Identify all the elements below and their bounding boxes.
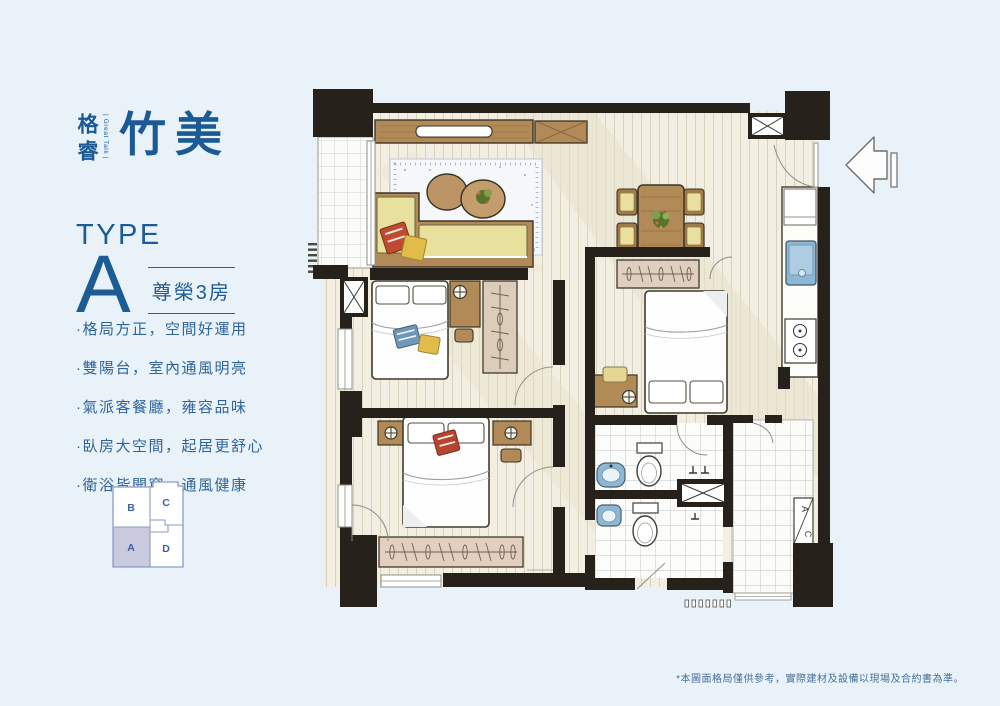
bed <box>645 291 727 413</box>
drain-bumps <box>685 600 731 607</box>
pillow <box>690 381 723 403</box>
stove <box>785 319 816 363</box>
nightstand <box>378 421 404 445</box>
front-balcony <box>308 137 373 273</box>
wall-corner-br <box>793 543 833 607</box>
ac-unit: A C <box>794 498 813 544</box>
bed <box>403 417 489 527</box>
stool <box>603 367 627 382</box>
balcony-slider-window <box>367 141 375 265</box>
key-plan: B C A D <box>103 479 193 575</box>
side-cabinet <box>535 121 587 143</box>
pillow <box>413 286 446 304</box>
toilet <box>637 443 662 486</box>
accent-pillow-yellow <box>418 334 441 354</box>
fridge <box>784 189 816 225</box>
ac-label-a: A <box>800 506 810 512</box>
pipe-shaft <box>677 479 729 507</box>
pillow <box>376 286 409 304</box>
wardrobe <box>617 260 699 288</box>
wall-right <box>818 187 830 543</box>
terrace-rail <box>685 593 791 607</box>
stool <box>455 329 473 342</box>
key-plan-unit-b: B <box>127 502 135 514</box>
bed <box>372 281 448 379</box>
key-plan-unit-d: D <box>162 543 170 555</box>
wardrobe <box>379 537 523 567</box>
window <box>338 329 352 389</box>
disclaimer: *本圖面格局僅供參考，實際建材及設備以現場及合約書為準。 <box>676 670 964 685</box>
pillow <box>649 381 686 403</box>
brand-tagline: | Great Talk | <box>102 113 109 159</box>
feature-item: ·格局方正，空間好運用 <box>76 318 264 339</box>
pipe-shaft <box>752 117 783 135</box>
wardrobe <box>483 281 517 373</box>
wall-corner-tl <box>313 89 373 137</box>
dining-chair <box>684 189 704 215</box>
entry-arrow-icon <box>846 137 897 193</box>
window <box>381 575 441 587</box>
kitchen-sink <box>786 241 816 285</box>
feature-item: ·氣派客餐廳，雍容品味 <box>76 396 264 417</box>
dining-chair <box>684 223 704 249</box>
window <box>338 485 352 527</box>
stool <box>501 449 521 462</box>
dining-table <box>638 185 684 255</box>
wall-corner-bl <box>340 535 377 607</box>
tv <box>416 126 492 137</box>
wall-corner-tr <box>785 91 830 140</box>
floor-plan-illustration: A C <box>295 75 905 635</box>
toilet <box>633 503 658 546</box>
key-plan-unit-c: C <box>162 497 170 509</box>
bedroom-2 <box>372 281 517 379</box>
key-plan-unit-a: A <box>127 542 135 554</box>
kitchen <box>782 187 818 377</box>
feature-item: ·臥房大空間，起居更舒心 <box>76 435 264 456</box>
wash-basin <box>597 505 621 526</box>
dining-chair <box>617 189 637 215</box>
brand-name-vertical: 格睿 <box>76 113 97 167</box>
wall-top <box>373 103 750 113</box>
type-badge: 尊榮3房 <box>148 267 235 314</box>
ac-label-c: C <box>803 531 813 538</box>
brand-logo: 格睿 | Great Talk | 竹美 <box>76 113 231 167</box>
brand-name-main: 竹美 <box>119 111 231 158</box>
type-block: TYPE A 尊榮3房 <box>76 219 235 318</box>
tv-console <box>375 120 533 143</box>
throw-pillow-yellow <box>401 235 427 261</box>
pipe-shaft <box>340 277 368 317</box>
type-letter: A <box>76 252 131 318</box>
wash-basin <box>597 463 625 487</box>
dining-chair <box>617 223 637 249</box>
floor-plan-area: A C <box>295 75 905 635</box>
feature-item: ·雙陽台，室內通風明亮 <box>76 357 264 378</box>
